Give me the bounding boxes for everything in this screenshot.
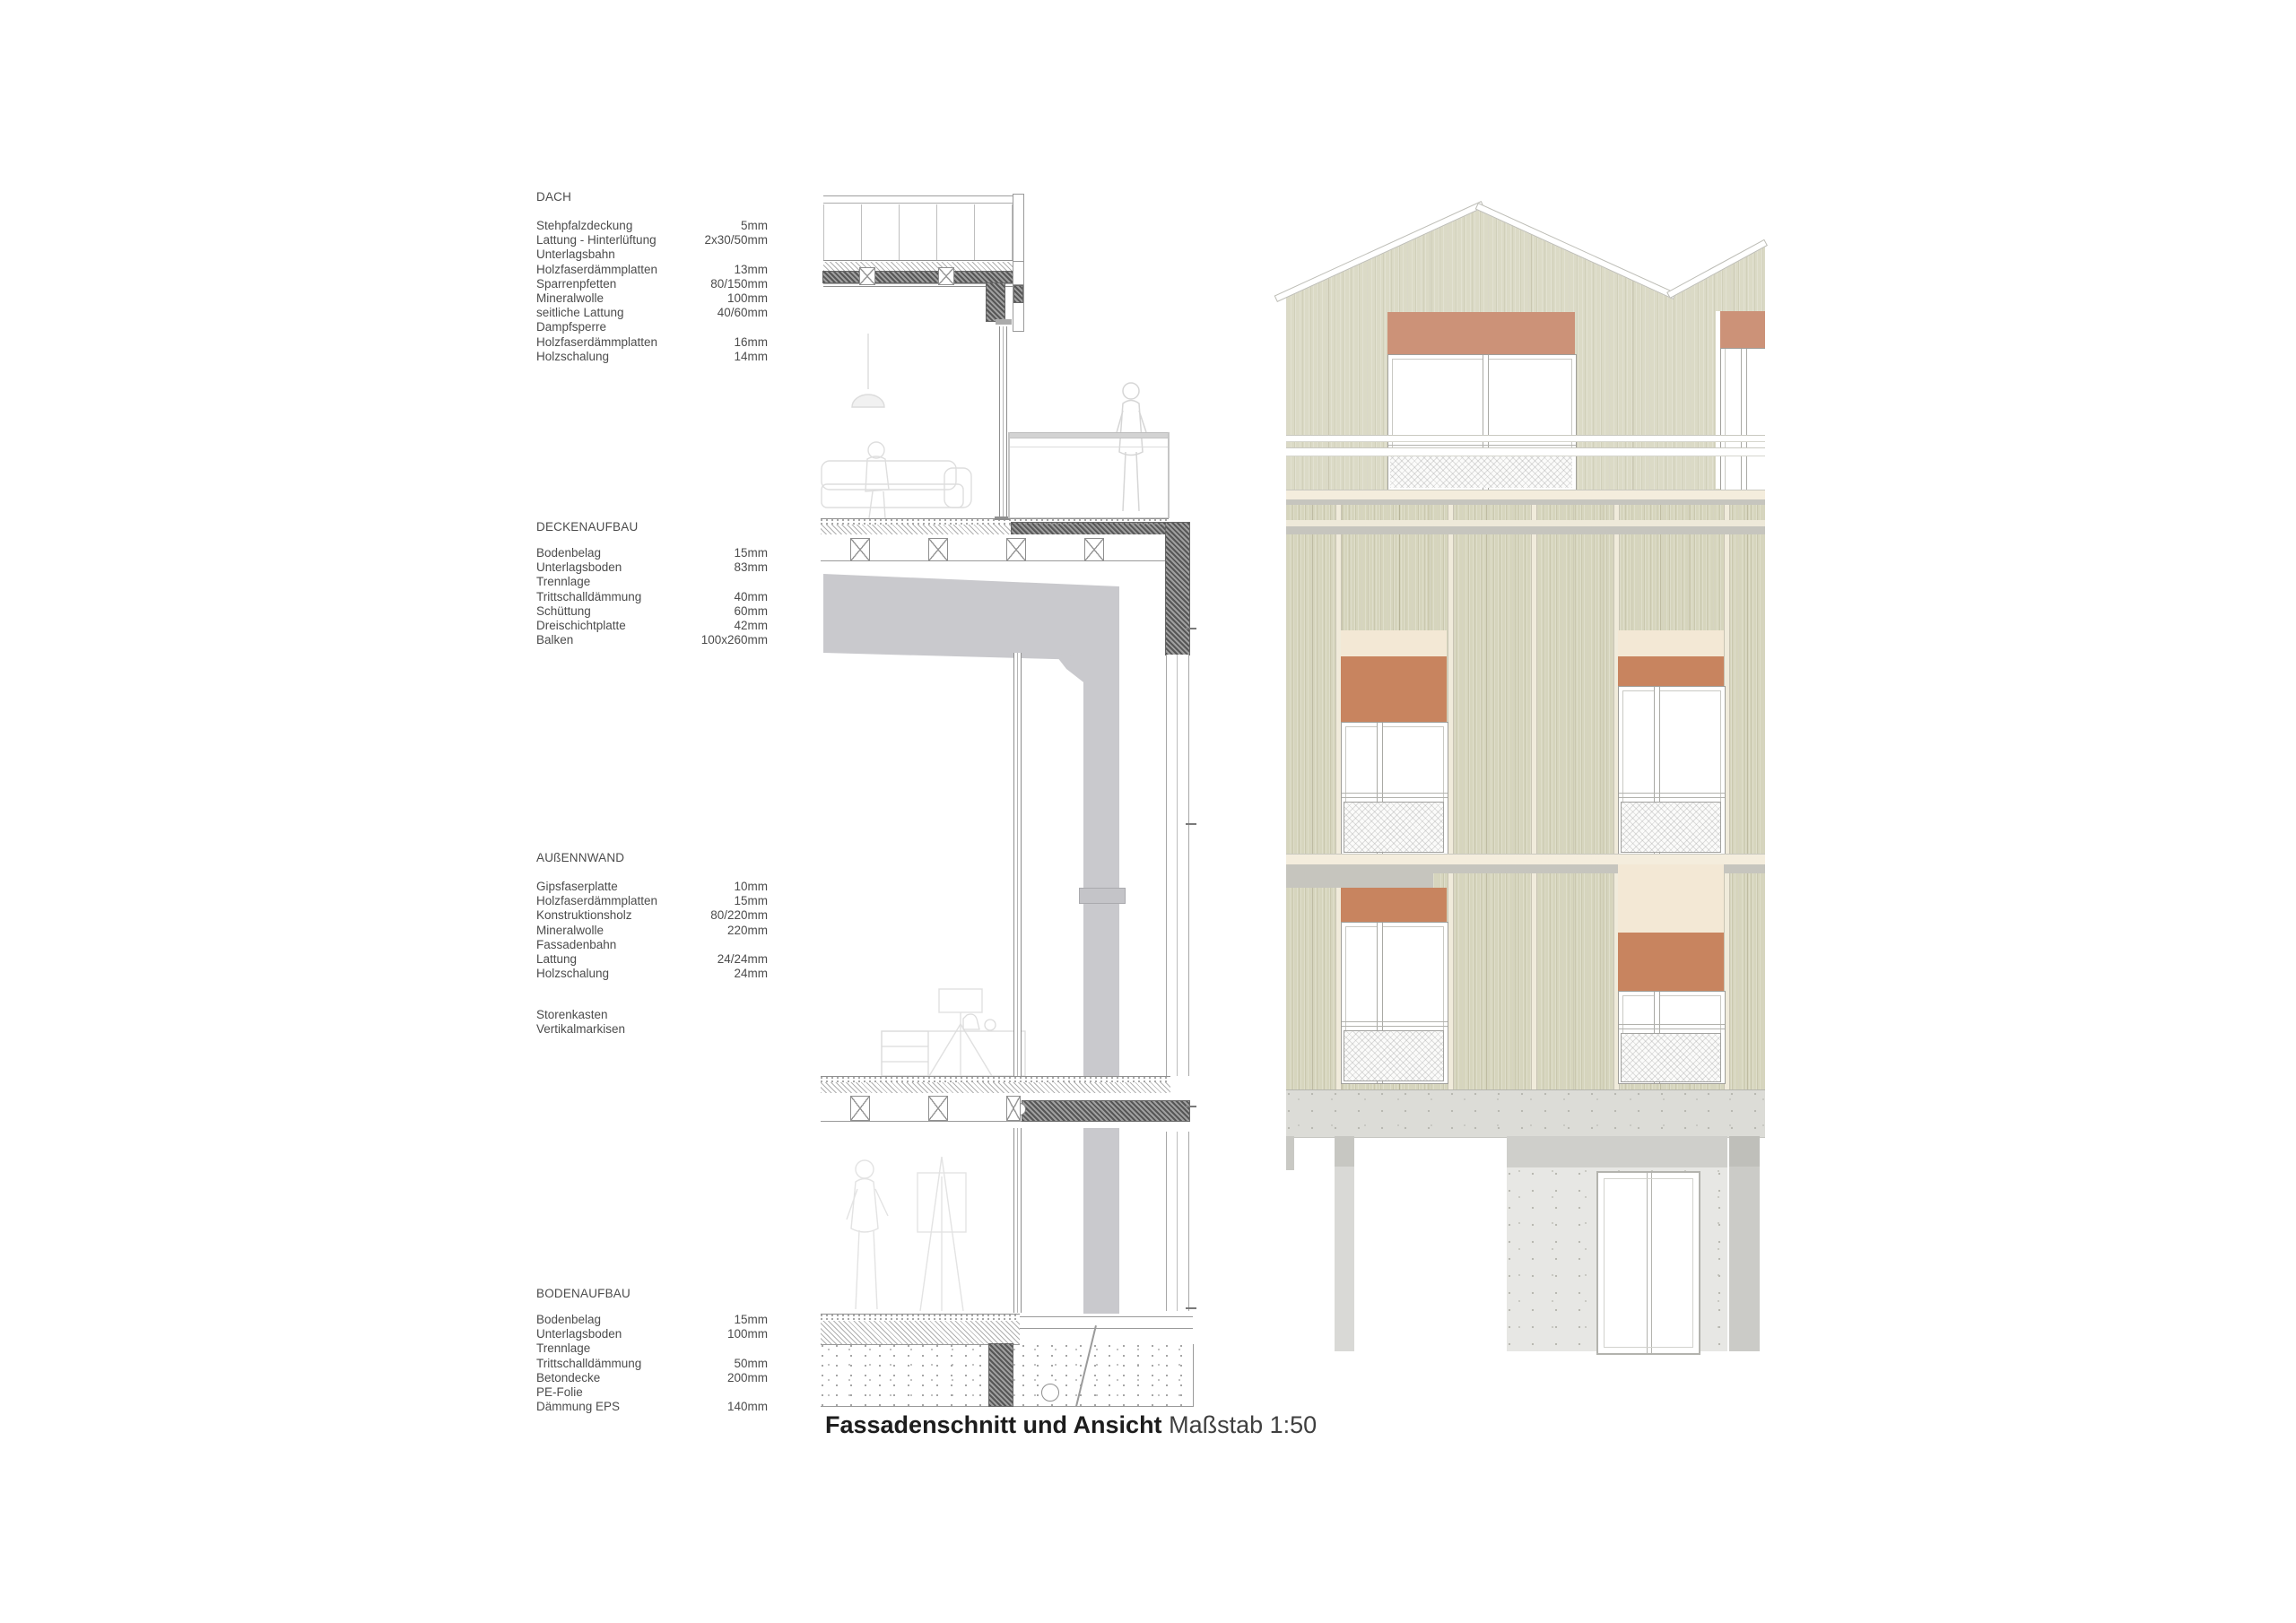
panel-joint xyxy=(1448,505,1454,1089)
window xyxy=(1618,991,1726,1084)
window xyxy=(1341,922,1448,1084)
window xyxy=(1618,686,1726,855)
ground-wall xyxy=(1507,1136,1727,1351)
sheet: { "legend": { "sections": [ { "title": "… xyxy=(0,0,2296,1623)
awning-blind-attic xyxy=(1720,311,1765,348)
elevation-drawing xyxy=(0,0,2296,1623)
panel-joint xyxy=(1531,505,1537,1089)
awning-blind xyxy=(1618,656,1724,686)
ground-column xyxy=(1729,1136,1760,1351)
window-attic xyxy=(1387,354,1577,490)
railing-mesh xyxy=(1621,1033,1721,1082)
awning-blind-attic xyxy=(1387,312,1575,354)
window-attic-partial xyxy=(1720,348,1768,490)
groove-shadow xyxy=(1286,526,1765,534)
window xyxy=(1341,722,1448,855)
entrance-door xyxy=(1596,1171,1700,1355)
ground-wall-cap xyxy=(1507,1136,1727,1167)
drawing-caption: Fassadenschnitt und Ansicht Maßstab 1:50 xyxy=(825,1411,1317,1439)
balcony-rail-line xyxy=(1286,435,1765,442)
railing-mesh xyxy=(1344,1030,1444,1081)
railing-mesh xyxy=(1390,452,1572,488)
awning-blind xyxy=(1618,933,1724,991)
railing-mesh xyxy=(1621,802,1721,853)
blind-box xyxy=(1618,630,1724,656)
caption-scale: Maßstab 1:50 xyxy=(1169,1411,1317,1438)
blind-box xyxy=(1341,630,1447,656)
ground-column xyxy=(1335,1136,1354,1351)
balcony-rail-line xyxy=(1286,447,1765,456)
concrete-slab-band xyxy=(1286,1089,1765,1138)
blind-box xyxy=(1618,864,1724,933)
groove-cream xyxy=(1286,520,1765,526)
gable-wall xyxy=(1286,209,1765,490)
caption-title: Fassadenschnitt und Ansicht xyxy=(825,1411,1162,1438)
awning-blind xyxy=(1341,656,1447,722)
ground-column-sliver xyxy=(1286,1136,1294,1170)
railing-mesh xyxy=(1344,802,1444,853)
floor-band-shadow-left xyxy=(1286,864,1433,888)
awning-blind xyxy=(1341,888,1447,922)
floor-band-shadow xyxy=(1286,499,1765,505)
